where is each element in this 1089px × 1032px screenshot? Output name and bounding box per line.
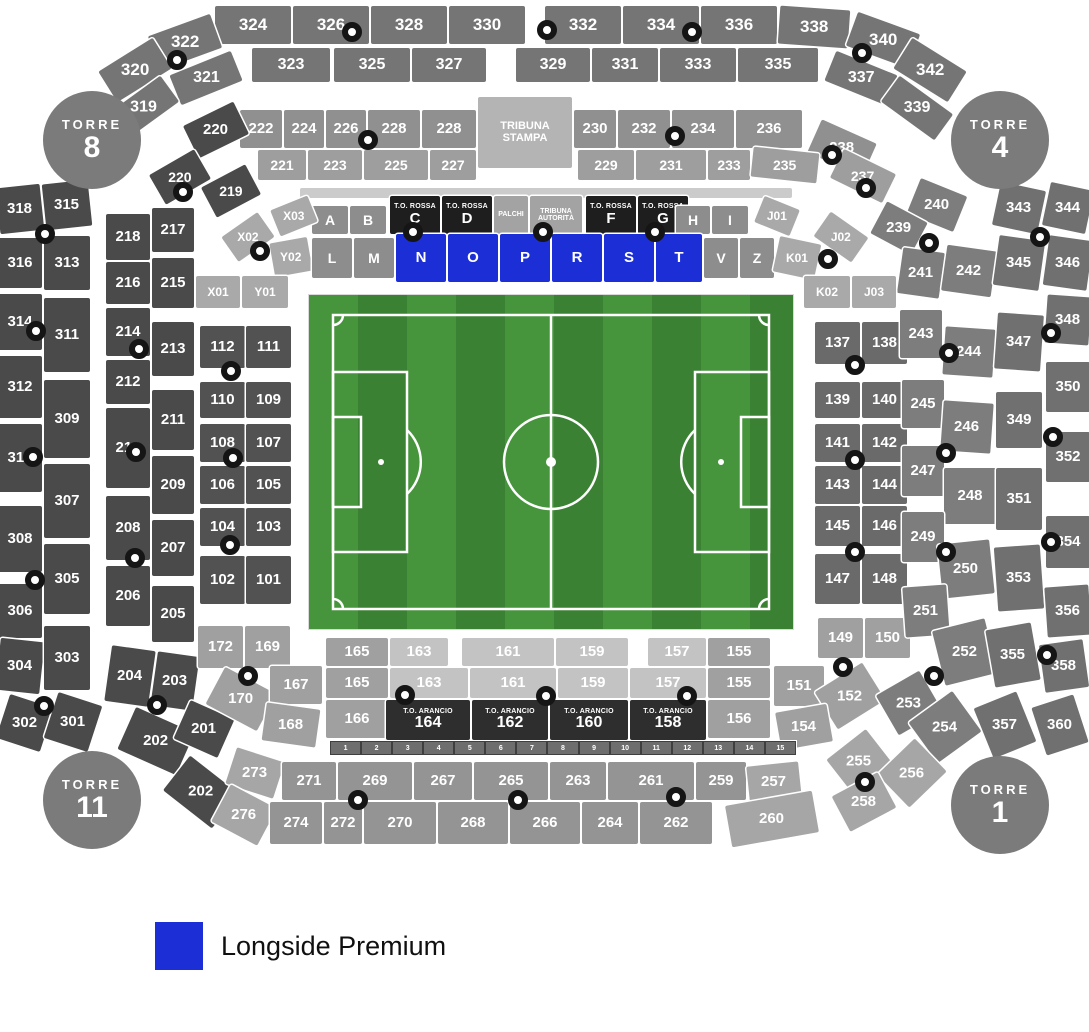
section-label: 267 — [430, 773, 455, 789]
gate-dot[interactable] — [23, 447, 43, 467]
section-142[interactable]: 142 — [862, 424, 907, 462]
section-label: 227 — [441, 158, 464, 173]
section-264[interactable]: 264 — [582, 802, 638, 844]
section-label: 323 — [278, 57, 305, 74]
section-label: 226 — [333, 121, 358, 137]
section-label: 328 — [395, 16, 423, 34]
section-label: 324 — [239, 16, 267, 34]
section-305[interactable]: 305 — [44, 544, 90, 614]
section-145[interactable]: 145 — [815, 506, 860, 546]
section-165[interactable]: 165 — [326, 668, 388, 698]
gate-dot[interactable] — [666, 787, 686, 807]
section-label: 236 — [756, 121, 781, 137]
gate-dot[interactable] — [403, 222, 423, 242]
section-label: 234 — [690, 121, 715, 137]
gate-dot[interactable] — [822, 145, 842, 165]
gate-dot[interactable] — [34, 696, 54, 716]
section-label: 304 — [7, 658, 32, 674]
section-label: 169 — [255, 639, 280, 655]
gate-dot[interactable] — [223, 448, 243, 468]
section-168[interactable]: 168 — [262, 702, 321, 747]
section-324[interactable]: 324 — [215, 6, 291, 44]
gate-dot[interactable] — [129, 339, 149, 359]
section-label: 345 — [1006, 255, 1031, 271]
section-label: 211 — [161, 412, 185, 428]
section-label: 305 — [54, 571, 79, 587]
section-h[interactable]: H — [676, 206, 710, 234]
section-242[interactable]: 242 — [941, 245, 997, 298]
gate-dot[interactable] — [1030, 227, 1050, 247]
section-216[interactable]: 216 — [106, 262, 150, 304]
section-328[interactable]: 328 — [371, 6, 447, 44]
gate-dot[interactable] — [856, 178, 876, 198]
section-label: 231 — [659, 158, 682, 173]
section-212[interactable]: 212 — [106, 360, 150, 404]
strip-number: 15 — [766, 742, 795, 754]
section-248[interactable]: 248 — [944, 468, 996, 524]
gate-dot[interactable] — [833, 657, 853, 677]
section-356[interactable]: 356 — [1044, 585, 1089, 638]
section-325[interactable]: 325 — [334, 48, 410, 82]
gate-dot[interactable] — [818, 249, 838, 269]
section-346[interactable]: 346 — [1043, 235, 1089, 291]
section-236[interactable]: 236 — [736, 110, 802, 148]
gate-dot[interactable] — [936, 542, 956, 562]
section-150[interactable]: 150 — [865, 618, 910, 658]
section-162[interactable]: T.O. ARANCIO162 — [472, 700, 548, 740]
section-232[interactable]: 232 — [618, 110, 670, 148]
section-label: 140 — [872, 392, 897, 408]
section-tribuna-stampa[interactable]: TRIBUNA STAMPA — [478, 97, 572, 168]
section-palchi[interactable]: PALCHI — [494, 196, 528, 234]
section-167[interactable]: 167 — [270, 666, 322, 704]
section-label: 333 — [685, 57, 712, 74]
gate-dot[interactable] — [939, 343, 959, 363]
section-k01[interactable]: K01 — [773, 236, 822, 280]
section-229[interactable]: 229 — [578, 150, 634, 180]
section-o[interactable]: O — [448, 234, 498, 282]
tower-word: TORRE — [62, 117, 122, 132]
gate-dot[interactable] — [536, 686, 556, 706]
section-label: 145 — [825, 518, 850, 534]
section-144[interactable]: 144 — [862, 466, 907, 504]
section-label: 155 — [726, 675, 751, 691]
section-label: 215 — [160, 275, 185, 291]
section-label: 313 — [54, 255, 79, 271]
section-label: 142 — [872, 435, 897, 451]
gate-dot[interactable] — [35, 224, 55, 244]
section-label: 159 — [580, 675, 605, 691]
section-259[interactable]: 259 — [696, 762, 746, 800]
section-x03[interactable]: X03 — [270, 196, 318, 237]
tower-11: TORRE11 — [43, 751, 141, 849]
gate-dot[interactable] — [220, 535, 240, 555]
section-label: 268 — [460, 815, 485, 831]
section-157[interactable]: 157 — [648, 638, 706, 666]
section-label: 163 — [406, 644, 431, 660]
section-335[interactable]: 335 — [738, 48, 818, 82]
section-103[interactable]: 103 — [246, 508, 291, 546]
gate-dot[interactable] — [342, 22, 362, 42]
section-label: 340 — [869, 31, 897, 49]
section-label: 155 — [726, 644, 751, 660]
section-155[interactable]: 155 — [708, 638, 770, 666]
section-label: 260 — [759, 811, 784, 827]
section-101[interactable]: 101 — [246, 556, 291, 604]
section-label: 301 — [60, 714, 85, 730]
section-label: 139 — [825, 392, 850, 408]
gate-dot[interactable] — [238, 666, 258, 686]
section-148[interactable]: 148 — [862, 554, 907, 604]
gate-dot[interactable] — [1041, 323, 1061, 343]
gate-dot[interactable] — [537, 20, 557, 40]
section-label: 168 — [278, 717, 303, 733]
gate-dot[interactable] — [26, 321, 46, 341]
section-label: 102 — [210, 572, 235, 588]
section-205[interactable]: 205 — [152, 586, 194, 642]
section-217[interactable]: 217 — [152, 208, 194, 252]
section-330[interactable]: 330 — [449, 6, 525, 44]
section-label: 352 — [1055, 449, 1080, 465]
section-label: 325 — [359, 57, 386, 74]
section-label: 150 — [875, 630, 900, 646]
section-label: 204 — [117, 668, 142, 684]
section-label: A — [325, 213, 335, 228]
section-110[interactable]: 110 — [200, 382, 245, 418]
section-f[interactable]: T.O. ROSSAF — [586, 196, 636, 234]
section-k02[interactable]: K02 — [804, 276, 850, 308]
gate-dot[interactable] — [845, 450, 865, 470]
section-label: 247 — [910, 463, 935, 479]
strip-number: 8 — [548, 742, 577, 754]
section-label: 318 — [7, 201, 32, 217]
section-209[interactable]: 209 — [152, 456, 194, 514]
section-label: 202 — [188, 784, 213, 800]
section-225[interactable]: 225 — [364, 150, 428, 180]
gate-dot[interactable] — [1041, 532, 1061, 552]
section-sublabel: T.O. ROSSA — [394, 203, 436, 210]
gate-dot[interactable] — [167, 50, 187, 70]
section-140[interactable]: 140 — [862, 382, 907, 418]
section-label: J03 — [864, 286, 884, 299]
section-b[interactable]: B — [350, 206, 386, 234]
section-350[interactable]: 350 — [1046, 362, 1089, 412]
gate-dot[interactable] — [533, 222, 553, 242]
section-label: 225 — [384, 158, 407, 173]
section-228[interactable]: 228 — [422, 110, 476, 148]
section-j03[interactable]: J03 — [852, 276, 896, 308]
section-355[interactable]: 355 — [985, 622, 1040, 687]
section-235[interactable]: 235 — [751, 147, 820, 184]
section-149[interactable]: 149 — [818, 618, 863, 658]
section-label: 350 — [1055, 379, 1080, 395]
section-label: 316 — [7, 255, 32, 271]
strip-number: 4 — [424, 742, 453, 754]
section-159[interactable]: 159 — [558, 668, 628, 698]
section-label: 104 — [210, 519, 235, 535]
section-164[interactable]: T.O. ARANCIO164 — [386, 700, 470, 740]
section-label: 346 — [1055, 255, 1080, 271]
section-label: 205 — [160, 606, 185, 622]
section-label: 265 — [498, 773, 523, 789]
section-105[interactable]: 105 — [246, 466, 291, 504]
section-218[interactable]: 218 — [106, 214, 150, 260]
gate-dot[interactable] — [147, 695, 167, 715]
section-112[interactable]: 112 — [200, 326, 245, 368]
section-312[interactable]: 312 — [0, 356, 42, 418]
section-label: 208 — [115, 520, 140, 536]
section-label: 256 — [899, 765, 924, 781]
section-227[interactable]: 227 — [430, 150, 476, 180]
section-109[interactable]: 109 — [246, 382, 291, 418]
section-label: 338 — [800, 18, 828, 36]
gate-dot[interactable] — [126, 442, 146, 462]
section-label: 202 — [143, 733, 168, 749]
section-label: 137 — [825, 335, 850, 351]
section-s[interactable]: S — [604, 234, 654, 282]
section-163[interactable]: 163 — [390, 638, 448, 666]
section-x01[interactable]: X01 — [196, 276, 240, 308]
section-label: 332 — [569, 16, 597, 34]
section-label: 172 — [208, 639, 233, 655]
section-241[interactable]: 241 — [897, 247, 945, 298]
gate-dot[interactable] — [924, 666, 944, 686]
gate-dot[interactable] — [25, 570, 45, 590]
section-sublabel: T.O. ARANCIO — [485, 708, 535, 715]
strip-number: 1 — [331, 742, 360, 754]
section-207[interactable]: 207 — [152, 520, 194, 576]
strip-number: 5 — [455, 742, 484, 754]
section-158[interactable]: T.O. ARANCIO158 — [630, 700, 706, 740]
gate-dot[interactable] — [221, 361, 241, 381]
section-274[interactable]: 274 — [270, 802, 322, 844]
section-label: 206 — [115, 588, 140, 604]
section-353[interactable]: 353 — [994, 544, 1044, 611]
section-z[interactable]: Z — [740, 238, 774, 278]
section-160[interactable]: T.O. ARANCIO160 — [550, 700, 628, 740]
section-211[interactable]: 211 — [152, 390, 194, 450]
strip-number: 2 — [362, 742, 391, 754]
section-307[interactable]: 307 — [44, 464, 90, 538]
section-344[interactable]: 344 — [1042, 182, 1089, 234]
section-label: 229 — [594, 158, 617, 173]
section-j01[interactable]: J01 — [754, 196, 800, 236]
section-151[interactable]: 151 — [774, 666, 824, 706]
gate-dot[interactable] — [919, 233, 939, 253]
section-y02[interactable]: Y02 — [269, 237, 312, 277]
section-206[interactable]: 206 — [106, 566, 150, 626]
section-230[interactable]: 230 — [574, 110, 616, 148]
gate-dot[interactable] — [508, 790, 528, 810]
tower-number: 4 — [992, 132, 1009, 164]
section-351[interactable]: 351 — [996, 468, 1042, 530]
gate-dot[interactable] — [173, 182, 193, 202]
section-267[interactable]: 267 — [414, 762, 472, 800]
section-label: 207 — [160, 540, 185, 556]
section-308[interactable]: 308 — [0, 506, 42, 572]
section-169[interactable]: 169 — [245, 626, 290, 668]
section-label: 101 — [256, 572, 281, 588]
section-243[interactable]: 243 — [900, 310, 942, 358]
section-label: 250 — [953, 561, 978, 577]
section-102[interactable]: 102 — [200, 556, 245, 604]
section-label: 109 — [256, 392, 281, 408]
section-161[interactable]: 161 — [462, 638, 554, 666]
section-l[interactable]: L — [312, 238, 352, 278]
section-label: T.O. ARANCIO162 — [485, 708, 535, 732]
section-271[interactable]: 271 — [282, 762, 336, 800]
section-231[interactable]: 231 — [636, 150, 706, 180]
section-245[interactable]: 245 — [902, 380, 944, 428]
section-label: 249 — [910, 529, 935, 545]
section-v[interactable]: V — [704, 238, 738, 278]
section-label: TRIBUNA STAMPA — [478, 121, 572, 144]
section-349[interactable]: 349 — [996, 392, 1042, 448]
section-label: 264 — [597, 815, 622, 831]
section-r[interactable]: R — [552, 234, 602, 282]
section-label: 228 — [381, 121, 406, 137]
section-303[interactable]: 303 — [44, 626, 90, 690]
section-m[interactable]: M — [354, 238, 394, 278]
section-139[interactable]: 139 — [815, 382, 860, 418]
section-329[interactable]: 329 — [516, 48, 590, 82]
section-204[interactable]: 204 — [104, 645, 155, 707]
section-313[interactable]: 313 — [44, 236, 90, 290]
section-106[interactable]: 106 — [200, 466, 245, 504]
gate-dot[interactable] — [936, 443, 956, 463]
gate-dot[interactable] — [358, 130, 378, 150]
section-309[interactable]: 309 — [44, 380, 90, 458]
section-label: 262 — [663, 815, 688, 831]
section-label: 347 — [1006, 334, 1031, 350]
section-label: 218 — [115, 229, 140, 245]
section-label: 246 — [954, 419, 979, 435]
section-166[interactable]: 166 — [326, 700, 388, 738]
section-d[interactable]: T.O. ROSSAD — [442, 196, 492, 234]
section-label: 112 — [210, 339, 234, 355]
section-304[interactable]: 304 — [0, 638, 45, 694]
gate-dot[interactable] — [125, 548, 145, 568]
section-label: 303 — [54, 650, 79, 666]
section-263[interactable]: 263 — [550, 762, 606, 800]
section-159[interactable]: 159 — [556, 638, 628, 666]
section-label: S — [624, 250, 634, 266]
section-n[interactable]: N — [396, 234, 446, 282]
section-label: 161 — [495, 644, 520, 660]
section-107[interactable]: 107 — [246, 424, 291, 462]
section-label: 252 — [952, 644, 977, 660]
tower-word: TORRE — [970, 117, 1030, 132]
section-label: B — [363, 213, 373, 228]
section-label: Z — [753, 251, 762, 266]
section-332[interactable]: 332 — [545, 6, 621, 44]
tower-number: 1 — [992, 797, 1009, 829]
section-360[interactable]: 360 — [1031, 694, 1088, 755]
section-338[interactable]: 338 — [778, 6, 850, 49]
strip-number: 6 — [486, 742, 515, 754]
gate-dot[interactable] — [852, 43, 872, 63]
gate-dot[interactable] — [645, 222, 665, 242]
strip-number: 13 — [704, 742, 733, 754]
section-label: 224 — [291, 121, 316, 137]
section-221[interactable]: 221 — [258, 150, 306, 180]
football-pitch — [308, 294, 794, 630]
gate-dot[interactable] — [665, 126, 685, 146]
section-347[interactable]: 347 — [994, 312, 1044, 371]
gate-dot[interactable] — [845, 542, 865, 562]
section-label: 148 — [872, 571, 897, 587]
strip-number: 12 — [673, 742, 702, 754]
gate-dot[interactable] — [845, 355, 865, 375]
section-143[interactable]: 143 — [815, 466, 860, 504]
section-213[interactable]: 213 — [152, 322, 194, 376]
section-label: M — [368, 251, 380, 266]
strip-number: 7 — [517, 742, 546, 754]
section-sublabel: T.O. ARANCIO — [564, 708, 614, 715]
section-label: H — [688, 213, 698, 228]
section-172[interactable]: 172 — [198, 626, 243, 668]
gate-dot[interactable] — [1037, 645, 1057, 665]
section-327[interactable]: 327 — [412, 48, 486, 82]
section-262[interactable]: 262 — [640, 802, 712, 844]
gate-dot[interactable] — [250, 241, 270, 261]
section-t[interactable]: T — [656, 234, 702, 282]
section-311[interactable]: 311 — [44, 298, 90, 372]
section-233[interactable]: 233 — [708, 150, 750, 180]
section-306[interactable]: 306 — [0, 584, 42, 638]
section-label: 110 — [210, 392, 234, 408]
gate-dot[interactable] — [395, 685, 415, 705]
section-333[interactable]: 333 — [660, 48, 736, 82]
section-268[interactable]: 268 — [438, 802, 508, 844]
section-336[interactable]: 336 — [701, 6, 777, 44]
section-label: 261 — [638, 773, 663, 789]
section-323[interactable]: 323 — [252, 48, 330, 82]
section-label: 270 — [387, 815, 412, 831]
section-y01[interactable]: Y01 — [242, 276, 288, 308]
section-146[interactable]: 146 — [862, 506, 907, 546]
gate-dot[interactable] — [855, 772, 875, 792]
section-270[interactable]: 270 — [364, 802, 436, 844]
section-224[interactable]: 224 — [284, 110, 324, 148]
section-i[interactable]: I — [712, 206, 748, 234]
section-label: 203 — [162, 673, 187, 689]
section-215[interactable]: 215 — [152, 258, 194, 308]
section-111[interactable]: 111 — [246, 326, 291, 368]
section-331[interactable]: 331 — [592, 48, 658, 82]
strip-number: 3 — [393, 742, 422, 754]
gate-dot[interactable] — [348, 790, 368, 810]
gate-dot[interactable] — [677, 686, 697, 706]
section-label: T.O. ARANCIO160 — [564, 708, 614, 732]
section-label: R — [572, 250, 583, 266]
gate-dot[interactable] — [1043, 427, 1063, 447]
section-label: 244 — [956, 344, 981, 360]
section-223[interactable]: 223 — [308, 150, 362, 180]
section-label: 360 — [1047, 717, 1072, 733]
section-165[interactable]: 165 — [326, 638, 388, 666]
section-357[interactable]: 357 — [974, 691, 1037, 758]
row-number-strip: 123456789101112131415 — [330, 741, 796, 755]
section-156[interactable]: 156 — [708, 700, 770, 738]
section-316[interactable]: 316 — [0, 238, 42, 288]
gate-dot[interactable] — [682, 22, 702, 42]
section-219[interactable]: 219 — [201, 164, 261, 217]
section-155[interactable]: 155 — [708, 668, 770, 698]
section-label: 342 — [916, 61, 944, 79]
section-label: 209 — [160, 477, 185, 493]
section-label: Y02 — [280, 251, 301, 264]
